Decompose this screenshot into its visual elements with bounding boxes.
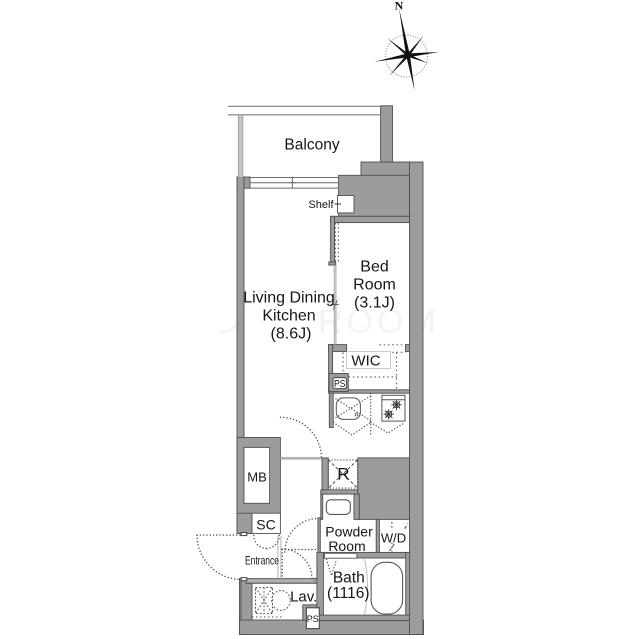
- svg-text:(1116): (1116): [327, 585, 370, 602]
- svg-text:WIC: WIC: [351, 353, 380, 370]
- svg-text:Powder: Powder: [325, 523, 373, 539]
- svg-text:PS: PS: [307, 614, 319, 624]
- svg-text:Room: Room: [353, 277, 396, 294]
- svg-text:Kitchen: Kitchen: [262, 308, 315, 325]
- svg-text:SC: SC: [256, 517, 275, 533]
- svg-text:Entrance: Entrance: [245, 553, 279, 567]
- svg-text:N: N: [395, 0, 404, 13]
- svg-text:Bath: Bath: [333, 570, 365, 587]
- svg-text:Balcony: Balcony: [284, 137, 339, 154]
- svg-text:R: R: [337, 465, 349, 484]
- svg-text:Lav.: Lav.: [290, 589, 317, 606]
- svg-text:Bed: Bed: [360, 259, 388, 276]
- svg-text:Room: Room: [328, 538, 365, 554]
- svg-text:(8.6J): (8.6J): [271, 326, 312, 343]
- svg-text:PS: PS: [334, 378, 346, 390]
- svg-text:Living Dining: Living Dining: [243, 290, 335, 307]
- svg-text:(3.1J): (3.1J): [354, 295, 395, 312]
- svg-text:MB: MB: [247, 470, 267, 485]
- svg-text:W/D: W/D: [381, 531, 406, 546]
- svg-text:Shelf: Shelf: [308, 199, 334, 211]
